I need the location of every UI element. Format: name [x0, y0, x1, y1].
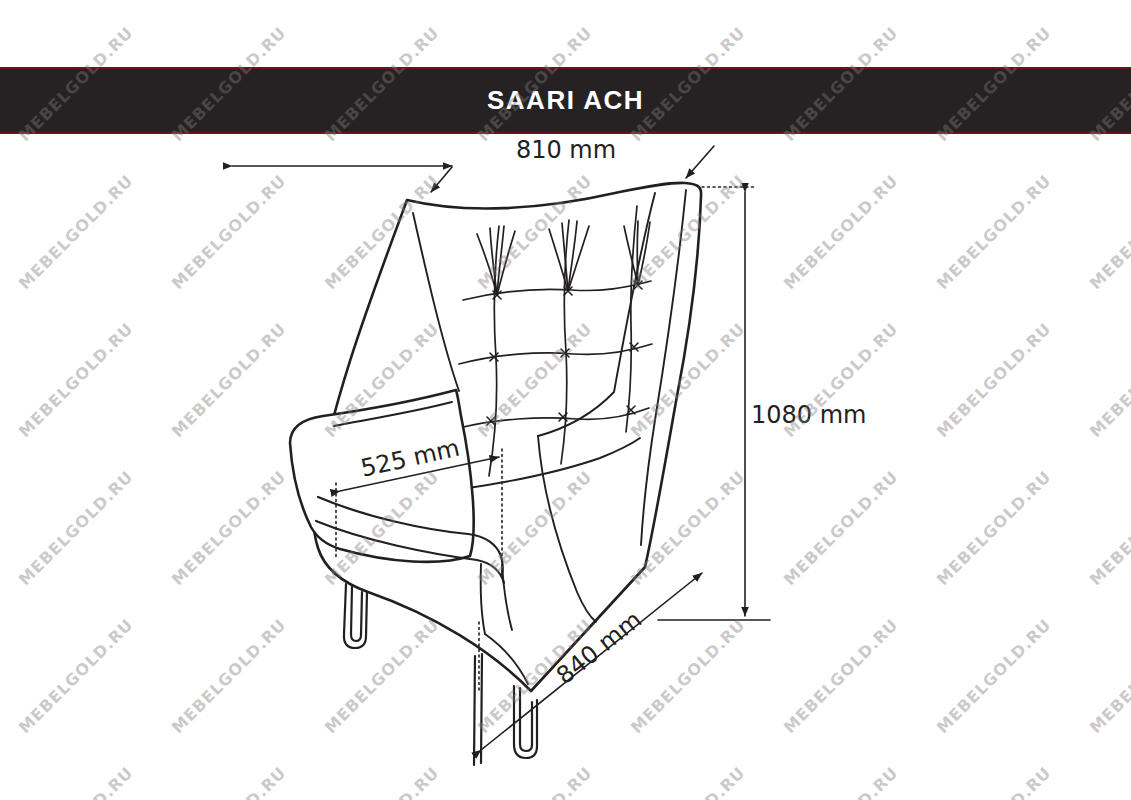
title-band: SAARI ACH [0, 67, 1131, 134]
chair-illustration [290, 183, 701, 765]
dimension-width: 810 mm [232, 136, 714, 192]
rear-leg-line2 [481, 654, 482, 763]
dimension-height-label: 1080 mm [751, 401, 866, 429]
dimension-width-leader-right [686, 146, 714, 178]
front-left-leg-inner [351, 586, 362, 641]
product-dimension-diagram: SAARI ACH [0, 0, 1131, 800]
rear-leg-line [474, 656, 475, 765]
pleat-fan [637, 221, 638, 285]
dimension-width-label: 810 mm [516, 136, 616, 164]
product-title: SAARI ACH [487, 85, 644, 116]
dimension-width-leader-left [431, 167, 452, 192]
